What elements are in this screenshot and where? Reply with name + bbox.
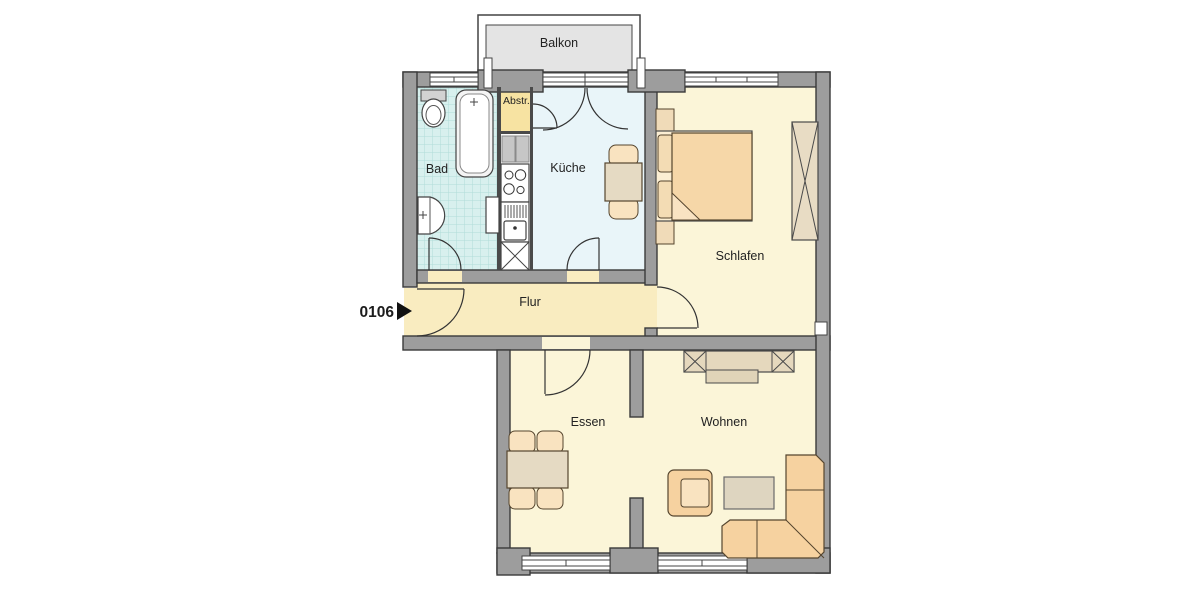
wall-flur-south xyxy=(403,336,830,350)
floorplan-drawing: Balkon xyxy=(0,0,1200,600)
double-bed xyxy=(656,131,752,221)
nightstand-top xyxy=(656,109,674,132)
floorplan-page: Balkon xyxy=(0,0,1200,600)
room-label-wohnen: Wohnen xyxy=(701,415,747,429)
kitchen-counter-right xyxy=(516,136,529,162)
wall-kueche-schlafen xyxy=(645,72,657,285)
kitchen-table xyxy=(605,163,642,201)
kitchen-counter-left xyxy=(502,136,515,162)
room-label-balkon: Balkon xyxy=(540,36,578,50)
wall-kueche-west-thin xyxy=(530,87,533,270)
wall-pier-south-middle xyxy=(610,548,658,573)
bath-niche xyxy=(486,197,499,233)
room-label-bad: Bad xyxy=(426,162,448,176)
wall-essen-wohnen-upper xyxy=(630,350,643,417)
flur-schlafen-opening xyxy=(645,285,657,328)
window-bad xyxy=(430,73,478,86)
wardrobe xyxy=(792,122,818,240)
balcony-post-left xyxy=(484,58,492,88)
room-label-flur: Flur xyxy=(519,295,541,309)
room-label-schlafen: Schlafen xyxy=(716,249,765,263)
wall-shaft xyxy=(815,322,827,335)
sideboard-tv xyxy=(706,370,758,383)
window-essen xyxy=(522,556,610,570)
kueche-door-opening xyxy=(567,271,599,282)
kitchen-sink xyxy=(501,202,529,242)
kitchen-cabinet xyxy=(501,242,529,270)
stove xyxy=(501,164,529,202)
room-label-abstellraum: Abstr. xyxy=(503,95,530,107)
kitchen-table-set xyxy=(605,145,642,219)
pillow-top xyxy=(658,135,673,172)
dining-chair-3 xyxy=(509,487,535,509)
wall-west-upper xyxy=(403,72,417,287)
toilet xyxy=(421,90,446,127)
dining-chair-1 xyxy=(509,431,535,453)
dining-table xyxy=(507,451,568,488)
dining-furniture xyxy=(507,431,568,509)
essen-door-opening xyxy=(542,337,590,349)
room-label-kueche: Küche xyxy=(550,161,585,175)
dining-chair-4 xyxy=(537,487,563,509)
wall-abstellraum-south-thin xyxy=(501,131,530,134)
wall-essen-wohnen-lower xyxy=(630,498,643,553)
room-abstellraum-floor xyxy=(501,87,530,133)
pillow-bottom xyxy=(658,181,673,218)
room-flur-floor xyxy=(417,283,645,336)
window-schlafen xyxy=(685,73,778,86)
unit-number-label: 0106 xyxy=(360,304,395,321)
coffee-table xyxy=(724,477,774,509)
bathtub xyxy=(456,90,493,177)
bad-door-opening xyxy=(428,271,462,282)
wall-bad-east-thin xyxy=(497,87,501,270)
window-balcony-door xyxy=(543,73,628,86)
room-label-essen: Essen xyxy=(571,415,606,429)
nightstand-bottom xyxy=(656,221,674,244)
dining-chair-2 xyxy=(537,431,563,453)
balcony-post-right xyxy=(637,58,645,88)
armchair xyxy=(668,470,712,516)
balcony: Balkon xyxy=(478,15,640,72)
